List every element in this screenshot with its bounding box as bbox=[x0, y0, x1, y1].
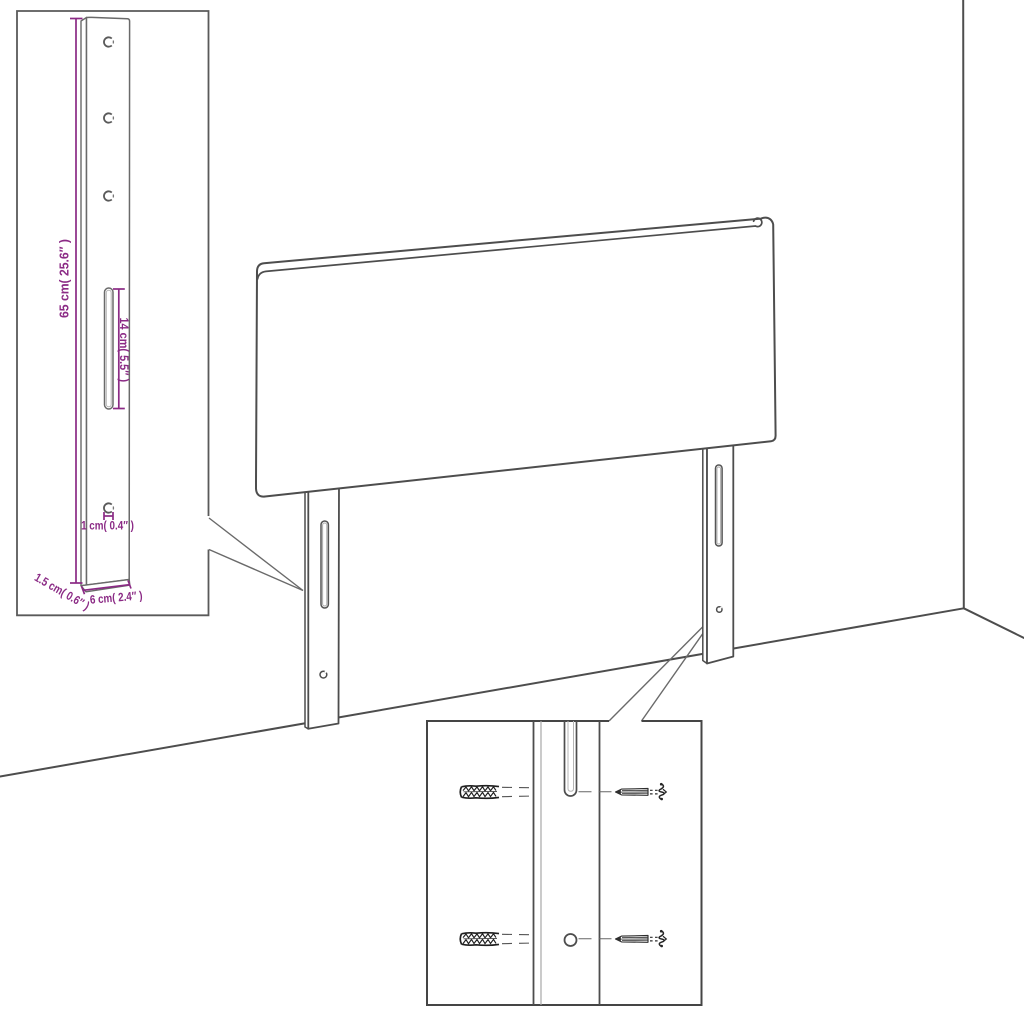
svg-text:14 cm( 5.5″ ): 14 cm( 5.5″ ) bbox=[117, 317, 130, 382]
svg-text:65 cm( 25.6″ ): 65 cm( 25.6″ ) bbox=[57, 239, 72, 318]
svg-text:1 cm( 0.4″ ): 1 cm( 0.4″ ) bbox=[81, 519, 134, 532]
